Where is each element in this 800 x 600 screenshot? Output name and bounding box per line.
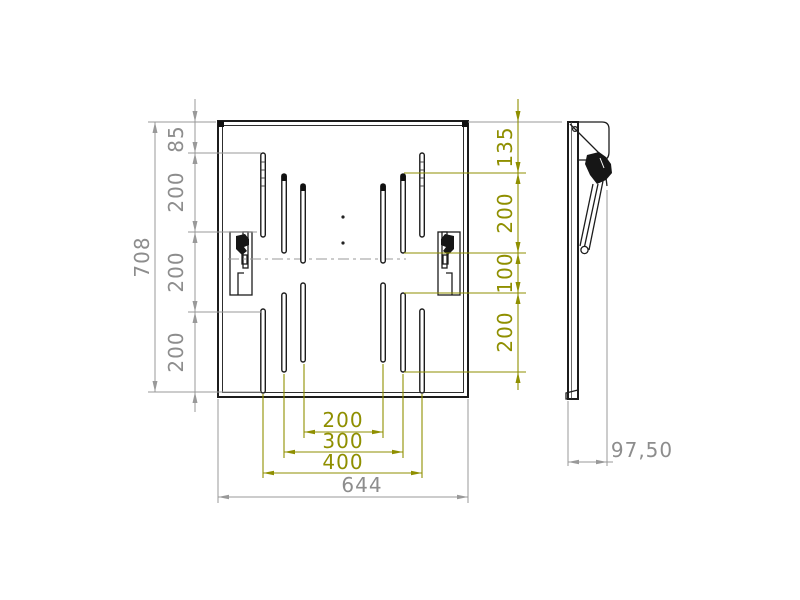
side-view-plate-bar: [568, 122, 578, 399]
drawing-linework: [0, 0, 800, 600]
plate-corner-mark-left: [218, 121, 224, 127]
dim-text-span-300: 300: [322, 431, 363, 451]
dim-text-span-400: 400: [322, 452, 363, 472]
dim-text-pitch-3: 200: [166, 331, 186, 372]
center-mark-dot: [341, 215, 344, 218]
dim-text-right-offset: 135: [495, 126, 515, 167]
side-view: [566, 122, 612, 399]
clamp-bracket-right: [438, 232, 460, 295]
center-mark-dot: [341, 241, 344, 244]
clamp-bracket-left: [230, 232, 252, 295]
dim-text-lower-slot: 200: [495, 311, 515, 352]
side-view-arm-end: [581, 246, 588, 253]
cad-drawing-page: 708 85 200 200 200 135 200 100 200 200 3…: [0, 0, 800, 600]
dim-text-plate-height: 708: [132, 236, 152, 277]
dim-text-top-offset: 85: [166, 125, 186, 152]
dim-text-upper-slot: 200: [495, 192, 515, 233]
front-view: [218, 121, 468, 397]
plate-corner-mark-right: [462, 121, 468, 127]
dim-text-profile-depth: 97,50: [611, 440, 673, 460]
dim-text-plate-width: 644: [341, 475, 382, 495]
dim-text-pitch-1: 200: [166, 171, 186, 212]
dim-text-span-200: 200: [322, 410, 363, 430]
dim-text-pitch-2: 200: [166, 251, 186, 292]
dim-text-slot-gap: 100: [495, 252, 515, 293]
